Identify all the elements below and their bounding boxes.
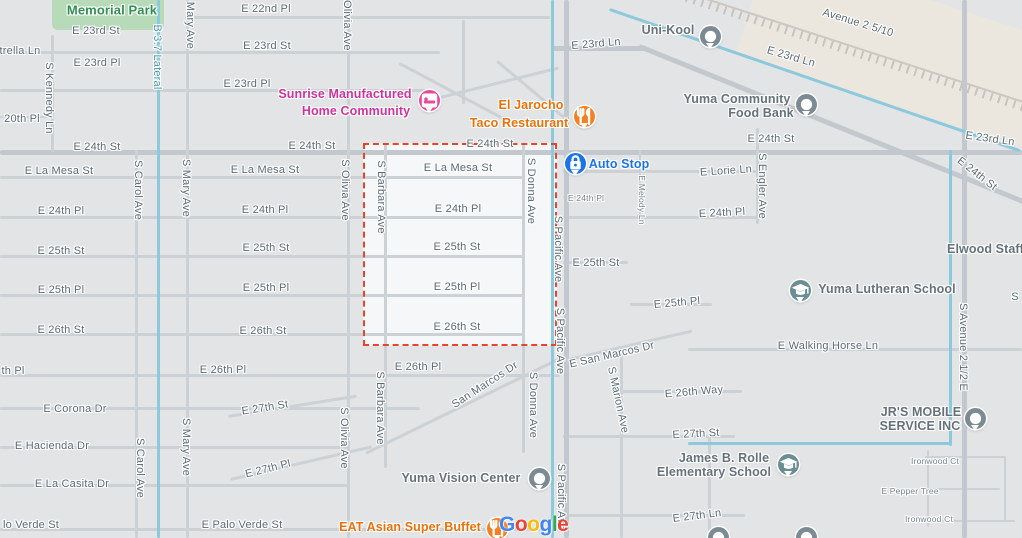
lock-pin-icon[interactable] (565, 153, 586, 174)
generic-pin-icon[interactable] (529, 468, 550, 489)
map-canvas[interactable]: E 22nd PlE 23rd StE 23rd StE 23rd LnE 23… (0, 0, 1022, 538)
google-logo-letter: o (527, 513, 539, 536)
yuma-lutheran-school-label[interactable]: Yuma Lutheran School (818, 282, 955, 296)
james-b-rolle-elementary-school-label[interactable]: James B. Rolle (679, 451, 769, 465)
el-jarocho-taco-restaurant-label[interactable]: Taco Restaurant (470, 116, 569, 130)
el-jarocho-taco-restaurant-label[interactable]: El Jarocho (499, 98, 564, 112)
generic-pin-icon[interactable] (796, 527, 817, 538)
poi-layer: Memorial ParkSunrise ManufacturedHome Co… (0, 0, 1022, 538)
yuma-vision-center-label[interactable]: Yuma Vision Center (402, 471, 521, 485)
restaurant-pin-icon[interactable] (574, 106, 595, 127)
generic-pin-icon[interactable] (700, 26, 721, 47)
sunrise-manufactured-home-community-label[interactable]: Sunrise Manufactured (278, 87, 411, 101)
jrs-mobile-service-inc-label[interactable]: SERVICE INC (880, 419, 961, 433)
yuma-community-food-bank-label[interactable]: Yuma Community (684, 92, 791, 106)
memorial-park-label[interactable]: Memorial Park (67, 3, 157, 18)
school-pin-icon[interactable] (790, 280, 811, 301)
auto-stop-label[interactable]: Auto Stop (589, 157, 650, 171)
uni-kool-label[interactable]: Uni-Kool (642, 23, 695, 37)
lodging-pin-icon[interactable] (419, 90, 440, 111)
generic-pin-icon[interactable] (708, 527, 729, 538)
elwood-staffing-label[interactable]: Elwood Staffing (947, 242, 1022, 256)
generic-pin-icon[interactable] (965, 408, 986, 429)
google-logo-letter: e (557, 513, 568, 536)
google-logo[interactable]: Google (499, 513, 568, 537)
james-b-rolle-elementary-school-label[interactable]: Elementary School (657, 465, 771, 479)
generic-pin-icon[interactable] (796, 94, 817, 115)
jrs-mobile-service-inc-label[interactable]: JR'S MOBILE (881, 405, 961, 419)
sunrise-manufactured-home-community-label[interactable]: Home Community (302, 104, 410, 118)
google-logo-letter: o (515, 513, 527, 536)
yuma-community-food-bank-label[interactable]: Food Bank (728, 106, 793, 120)
google-logo-letter: G (499, 513, 515, 536)
google-logo-letter: g (540, 513, 552, 536)
eat-asian-super-buffet-label[interactable]: EAT Asian Super Buffet (339, 520, 481, 534)
school-pin-icon[interactable] (778, 454, 799, 475)
